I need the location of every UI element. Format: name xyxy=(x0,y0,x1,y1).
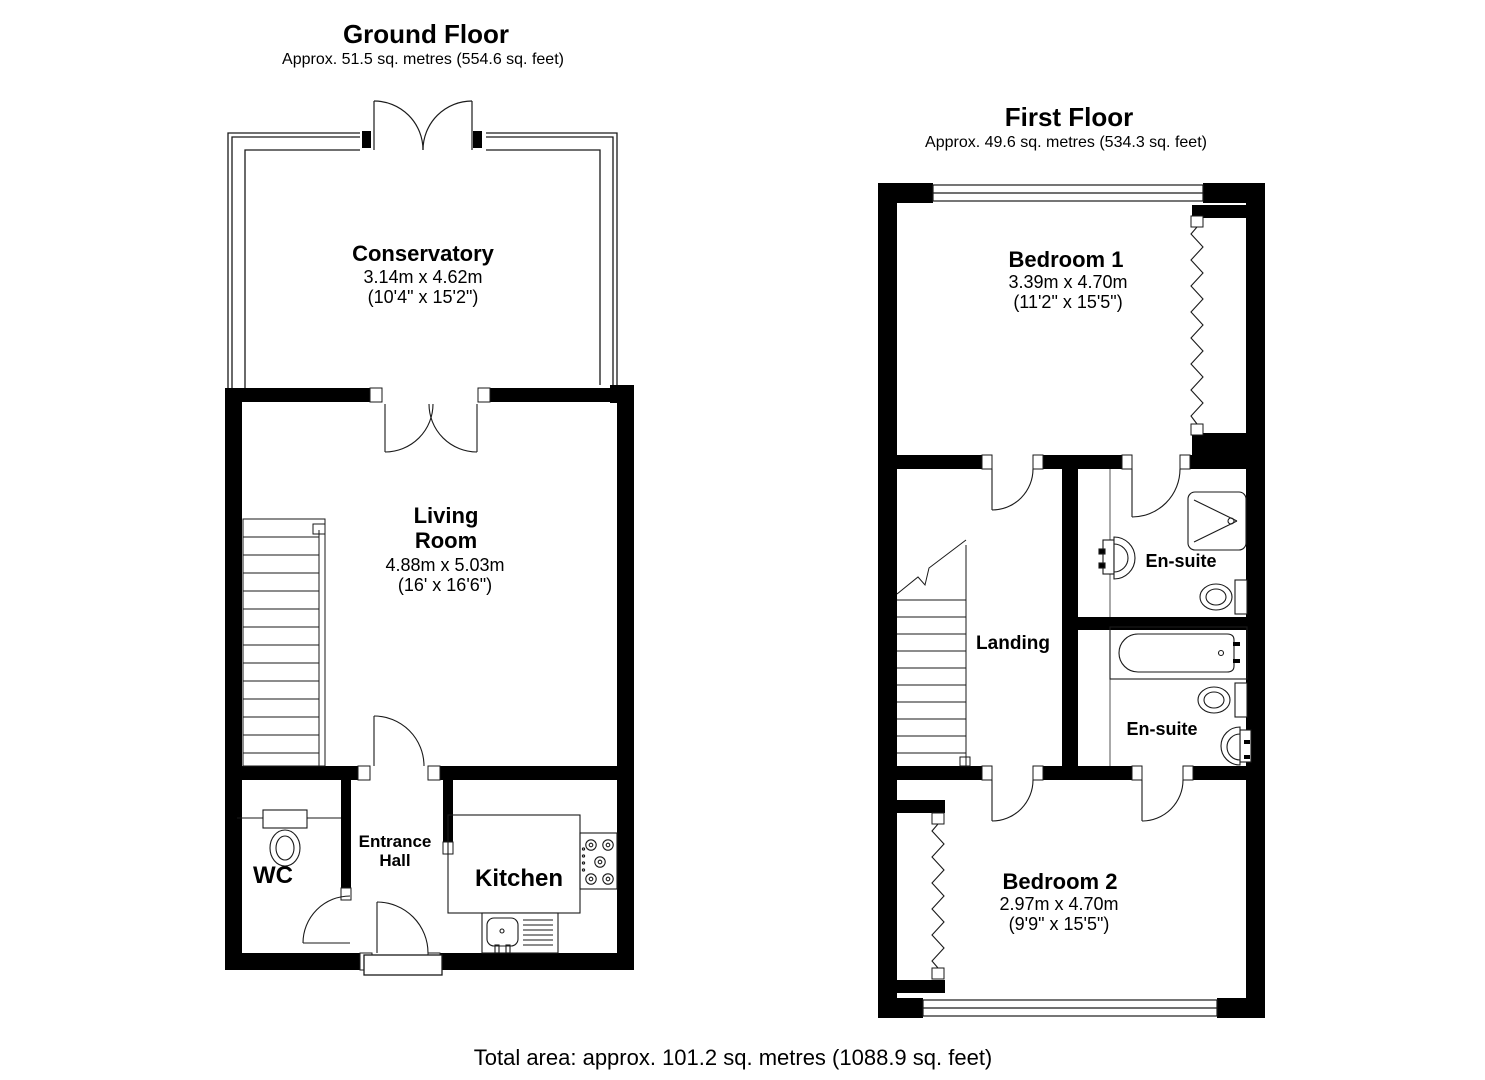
front-door-threshold xyxy=(364,955,442,975)
room-label-living-room: Living xyxy=(414,504,479,529)
shower-icon xyxy=(1188,492,1246,550)
room-label-ensuite2: En-suite xyxy=(1126,719,1197,739)
toilet-icon xyxy=(1200,580,1247,614)
door-jamb xyxy=(473,131,482,148)
ground-floor-subtitle: Approx. 51.5 sq. metres (554.6 sq. feet) xyxy=(282,51,564,69)
stairs-first-floor xyxy=(897,540,970,766)
landing-bedroom2-door xyxy=(992,780,1033,821)
bedroom1-landing-door xyxy=(992,469,1033,510)
room-label-conservatory: Conservatory xyxy=(352,242,494,267)
stove-icon xyxy=(580,833,617,889)
kitchen-counter xyxy=(448,815,580,913)
room-label-entrance-hall: Hall xyxy=(379,851,410,870)
kitchen-sink-icon xyxy=(482,913,558,953)
room-label-entrance-hall: Entrance xyxy=(359,832,432,851)
basin-icon xyxy=(1221,727,1251,765)
first-floor-title: First Floor xyxy=(1005,103,1134,132)
ensuite2-bedroom2-door xyxy=(1142,780,1183,821)
room-label-wc: WC xyxy=(253,863,293,890)
ground-floor-title: Ground Floor xyxy=(343,20,509,49)
room-label-bedroom1: Bedroom 1 xyxy=(1009,248,1124,273)
floorplan-canvas xyxy=(0,0,1485,1080)
wc-toilet-icon xyxy=(237,810,341,866)
bedroom1-ensuite-door xyxy=(1132,469,1180,517)
room-dims-metric: 3.39m x 4.70m xyxy=(1008,272,1127,292)
window xyxy=(933,185,1203,201)
stairs-ground-floor xyxy=(243,519,325,766)
total-area-text: Total area: approx. 101.2 sq. metres (10… xyxy=(474,1046,993,1071)
room-dims-imperial: (9'9" x 15'5") xyxy=(1009,914,1110,934)
double-doors-conservatory-living xyxy=(385,404,477,452)
floorplan-page: Ground Floor Approx. 51.5 sq. metres (55… xyxy=(0,0,1485,1080)
bath-icon xyxy=(1110,627,1247,679)
room-dims-metric: 4.88m x 5.03m xyxy=(385,555,504,575)
room-label-kitchen: Kitchen xyxy=(475,866,563,893)
room-dims-metric: 2.97m x 4.70m xyxy=(999,894,1118,914)
basin-icon xyxy=(1099,537,1135,579)
door-jamb xyxy=(362,131,371,148)
wardrobe-zigzag-bedroom1 xyxy=(1191,227,1203,424)
room-label-landing: Landing xyxy=(976,633,1050,654)
room-dims-imperial: (11'2" x 15'5") xyxy=(1013,292,1122,312)
door-jambs xyxy=(341,388,490,970)
living-room-door xyxy=(374,716,424,766)
first-floor-subtitle: Approx. 49.6 sq. metres (534.3 sq. feet) xyxy=(925,134,1207,152)
room-label-bedroom2: Bedroom 2 xyxy=(1003,870,1118,895)
room-dims-imperial: (16' x 16'6") xyxy=(398,575,492,595)
toilet-icon xyxy=(1198,683,1247,717)
room-label-ensuite1: En-suite xyxy=(1145,551,1216,571)
front-door xyxy=(377,902,428,953)
wardrobe-zigzag-bedroom2 xyxy=(932,824,944,968)
room-label-living-room: Room xyxy=(415,529,477,554)
wc-door xyxy=(303,896,350,943)
room-dims-imperial: (10'4" x 15'2") xyxy=(368,287,479,307)
room-dims-metric: 3.14m x 4.62m xyxy=(363,267,482,287)
window xyxy=(923,1000,1217,1016)
